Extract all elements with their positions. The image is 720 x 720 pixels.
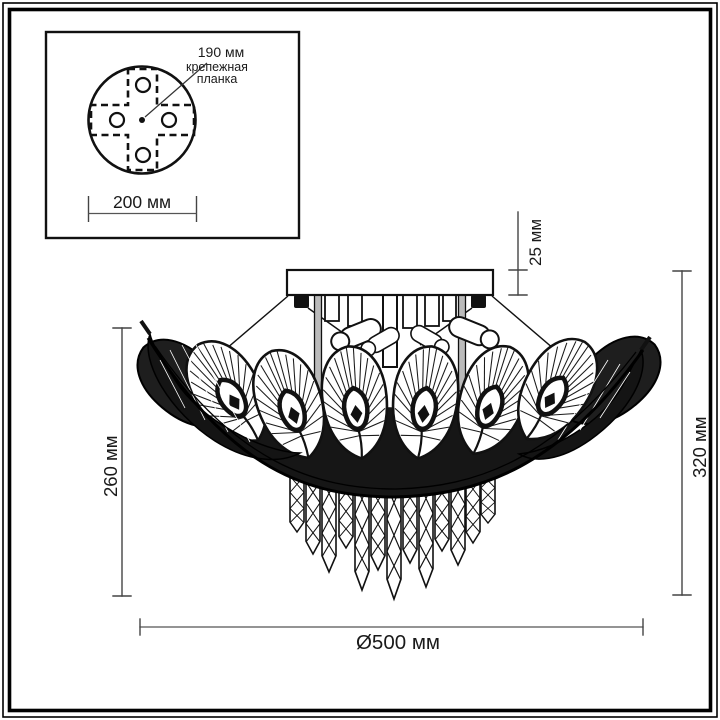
dim-label-200: 200 мм (113, 192, 171, 212)
dim-label-190: 190 мм (198, 44, 245, 60)
dim-label-diameter: Ø500 мм (356, 631, 440, 654)
mounting-hole-right (162, 113, 176, 127)
mounting-inset: 190 мм крепежная планка 200 мм (46, 32, 299, 238)
center-point (139, 117, 145, 123)
dim-label-320: 320 мм (689, 417, 710, 478)
hanger-rod-left (315, 295, 322, 391)
plate-knob-left (294, 295, 309, 308)
bulb-right (446, 314, 502, 352)
hanger-rod-right (459, 295, 466, 391)
mounting-hole-top (136, 78, 150, 92)
chandelier-figure (122, 270, 676, 599)
chandelier-dimension-drawing: 190 мм крепежная планка 200 мм (0, 0, 720, 720)
dim-label-260: 260 мм (100, 436, 121, 497)
mounting-hole-left (110, 113, 124, 127)
bracket-label-line2: планка (197, 72, 238, 86)
dim-label-25: 25 мм (526, 219, 545, 266)
plate-knob-right (471, 295, 486, 308)
mounting-hole-bottom (136, 148, 150, 162)
ceiling-plate (287, 270, 493, 295)
technical-drawing-page: 190 мм крепежная планка 200 мм (0, 0, 720, 720)
